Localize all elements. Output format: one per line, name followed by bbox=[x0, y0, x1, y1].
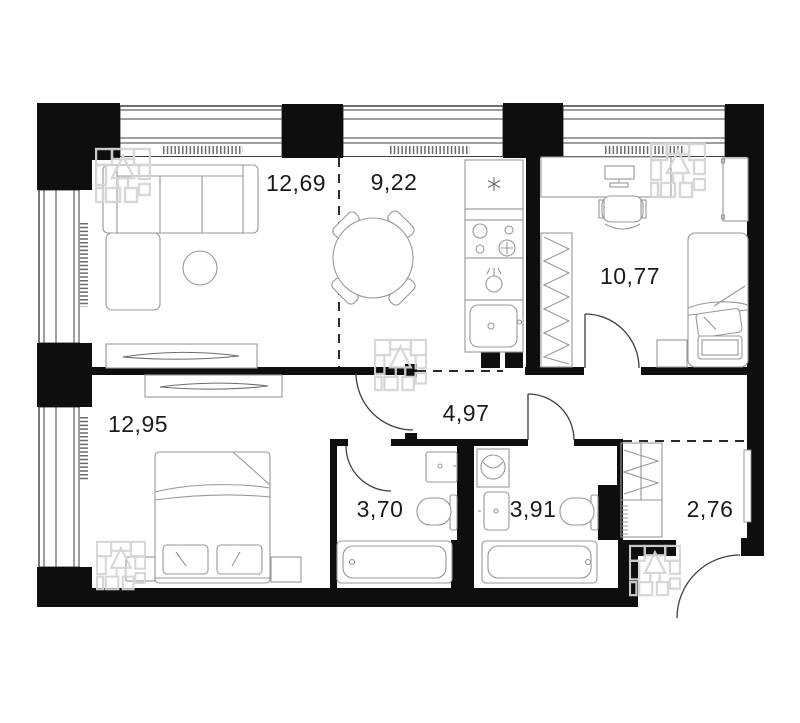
wall-hall-right-of-door bbox=[641, 367, 747, 375]
bedroom-left-furniture bbox=[126, 375, 301, 583]
nightstand bbox=[271, 557, 301, 582]
window-left-bedroom bbox=[39, 407, 80, 567]
column-top-left-leg bbox=[37, 103, 92, 190]
bathtub-icon bbox=[482, 541, 597, 583]
pillow bbox=[163, 545, 208, 574]
wall-hall-left-of-door bbox=[525, 367, 584, 375]
bed-double bbox=[155, 452, 270, 583]
counter-segment bbox=[465, 209, 523, 220]
entrance-hall-furniture bbox=[621, 443, 662, 537]
ottoman bbox=[183, 251, 217, 285]
pillow bbox=[217, 545, 262, 574]
faucet-icon bbox=[465, 258, 523, 300]
washbasin-icon bbox=[426, 452, 457, 482]
bathtub-icon bbox=[337, 541, 452, 583]
wall-bottom bbox=[92, 588, 638, 607]
door-arc-bedroom-right bbox=[585, 314, 639, 368]
wall-right-panel bbox=[744, 450, 751, 522]
kitchen-counter bbox=[465, 160, 523, 352]
nightstand bbox=[657, 340, 687, 367]
wall-between-baths-lower bbox=[451, 540, 474, 588]
wardrobe-bedroom-right bbox=[722, 158, 749, 221]
window-top-kitchen bbox=[343, 106, 503, 157]
floor-plan-svg: 12,69 9,22 10,77 12,95 4,97 3,70 3,91 2,… bbox=[0, 0, 800, 723]
column-bottom-left bbox=[37, 567, 92, 607]
developer-logo-watermark bbox=[375, 340, 426, 390]
tv-console-bedroom bbox=[145, 375, 282, 397]
wardrobe-entrance bbox=[621, 443, 662, 537]
wall-bath-top-c bbox=[574, 439, 623, 446]
toilet-icon bbox=[560, 495, 598, 530]
door-arc-bathroom-left bbox=[346, 446, 391, 491]
wall-bedroom-bath bbox=[330, 439, 337, 589]
door-arc-bathroom-right bbox=[528, 394, 574, 440]
room-label-bedroom-left: 12,95 bbox=[108, 411, 168, 437]
table-top bbox=[333, 218, 413, 298]
wall-bath-right-block bbox=[598, 485, 617, 540]
sofa bbox=[103, 165, 258, 310]
room-label-bedroom-right: 10,77 bbox=[600, 263, 660, 289]
room-label-kitchen: 9,22 bbox=[371, 169, 418, 195]
wall-kitchen-bedroom-right bbox=[526, 157, 540, 367]
desk-chair bbox=[599, 196, 646, 229]
column-top-right bbox=[725, 104, 764, 157]
wardrobe-kitchen-hall bbox=[541, 233, 572, 367]
bed-single bbox=[688, 233, 748, 367]
chaise-longue bbox=[106, 233, 160, 310]
wall-bath-cap bbox=[405, 433, 417, 441]
window-left-living bbox=[39, 190, 80, 343]
wall-kitchen-stub-left bbox=[481, 352, 500, 368]
sink-icon bbox=[465, 300, 523, 352]
toilet-icon bbox=[417, 495, 457, 530]
tv-stand-living bbox=[106, 344, 257, 368]
floor-plan-page: 12,69 9,22 10,77 12,95 4,97 3,70 3,91 2,… bbox=[0, 0, 800, 723]
dining-table bbox=[330, 209, 417, 307]
room-label-bathroom-right: 3,91 bbox=[510, 496, 557, 522]
column-mid-left bbox=[37, 343, 92, 407]
stove-icon bbox=[465, 220, 523, 258]
washing-machine-icon bbox=[477, 449, 509, 487]
room-label-living-room: 12,69 bbox=[266, 170, 326, 196]
door-arc-entrance bbox=[677, 555, 740, 618]
room-label-bathroom-left: 3,70 bbox=[357, 496, 404, 522]
fridge-icon bbox=[465, 160, 523, 209]
column-top-mid-right bbox=[503, 103, 563, 158]
wall-right-corner bbox=[741, 538, 764, 556]
column-top-mid-left bbox=[282, 104, 343, 158]
room-label-entrance-hall: 2,76 bbox=[687, 496, 734, 522]
wall-entry-side bbox=[618, 540, 638, 607]
living-room-furniture bbox=[103, 165, 258, 368]
room-label-hallway: 4,97 bbox=[443, 400, 490, 426]
washbasin-icon bbox=[478, 492, 509, 530]
